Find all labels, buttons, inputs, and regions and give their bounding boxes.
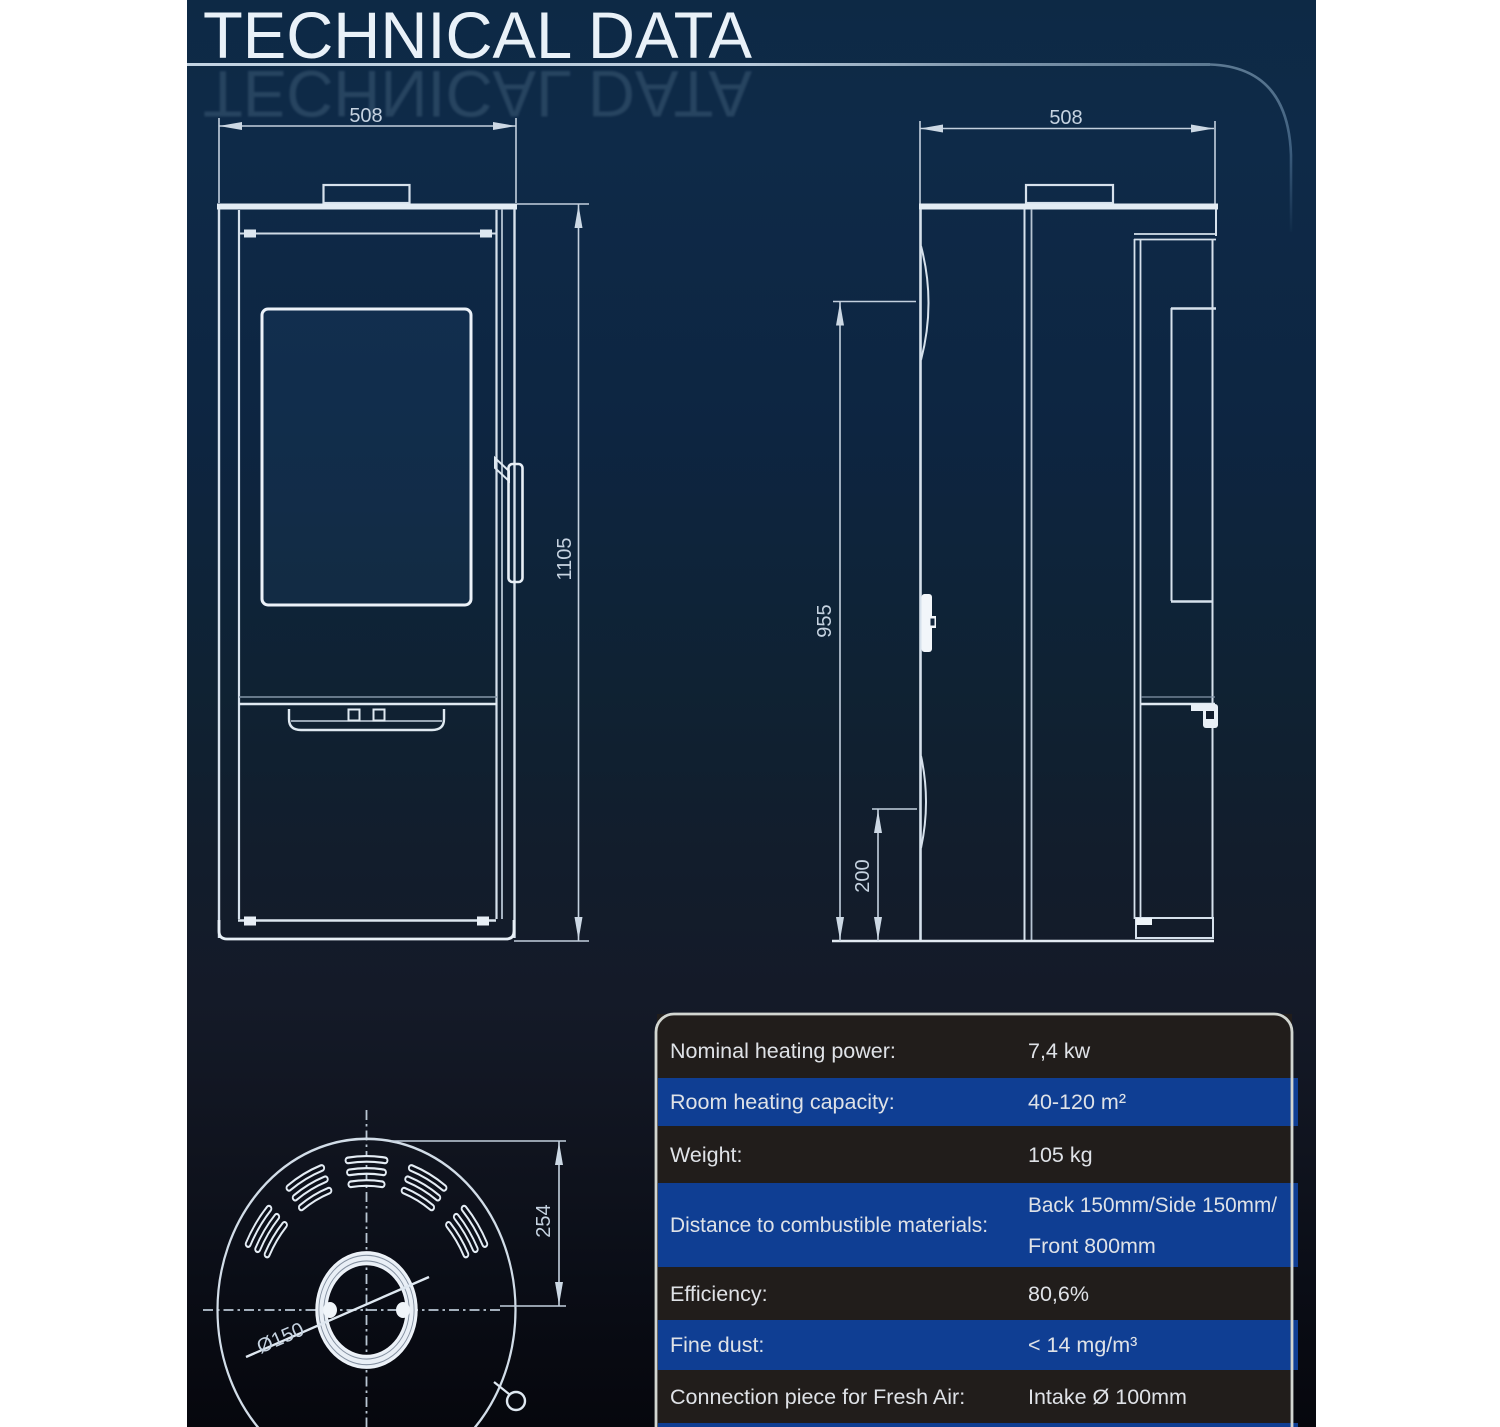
svg-text:Distance to combustible materi: Distance to combustible materials: [670,1213,988,1237]
svg-text:Efficiency:: Efficiency: [670,1282,768,1306]
svg-text:955: 955 [814,604,836,637]
svg-text:TECHNICAL DATA: TECHNICAL DATA [203,57,752,131]
svg-text:Nominal heating power:: Nominal heating power: [670,1039,896,1063]
svg-text:1105: 1105 [554,537,576,580]
svg-text:Front 800mm: Front 800mm [1028,1234,1156,1258]
svg-text:508: 508 [349,105,382,127]
svg-text:Intake Ø 100mm: Intake Ø 100mm [1028,1385,1187,1409]
svg-text:200: 200 [852,859,874,892]
svg-text:80,6%: 80,6% [1028,1282,1089,1306]
svg-text:Weight:: Weight: [670,1143,743,1167]
svg-text:7,4 kw: 7,4 kw [1028,1039,1091,1063]
svg-text:Room heating capacity:: Room heating capacity: [670,1090,895,1114]
svg-text:Back 150mm/Side 150mm/: Back 150mm/Side 150mm/ [1028,1193,1277,1217]
svg-text:105 kg: 105 kg [1028,1143,1093,1167]
svg-text:< 14 mg/m³: < 14 mg/m³ [1028,1333,1137,1357]
svg-text:254: 254 [533,1204,555,1237]
svg-text:40-120 m²: 40-120 m² [1028,1090,1126,1114]
svg-text:Fine dust:: Fine dust: [670,1333,764,1357]
svg-text:Connection piece for Fresh Air: Connection piece for Fresh Air: [670,1385,965,1409]
svg-text:508: 508 [1049,107,1082,129]
